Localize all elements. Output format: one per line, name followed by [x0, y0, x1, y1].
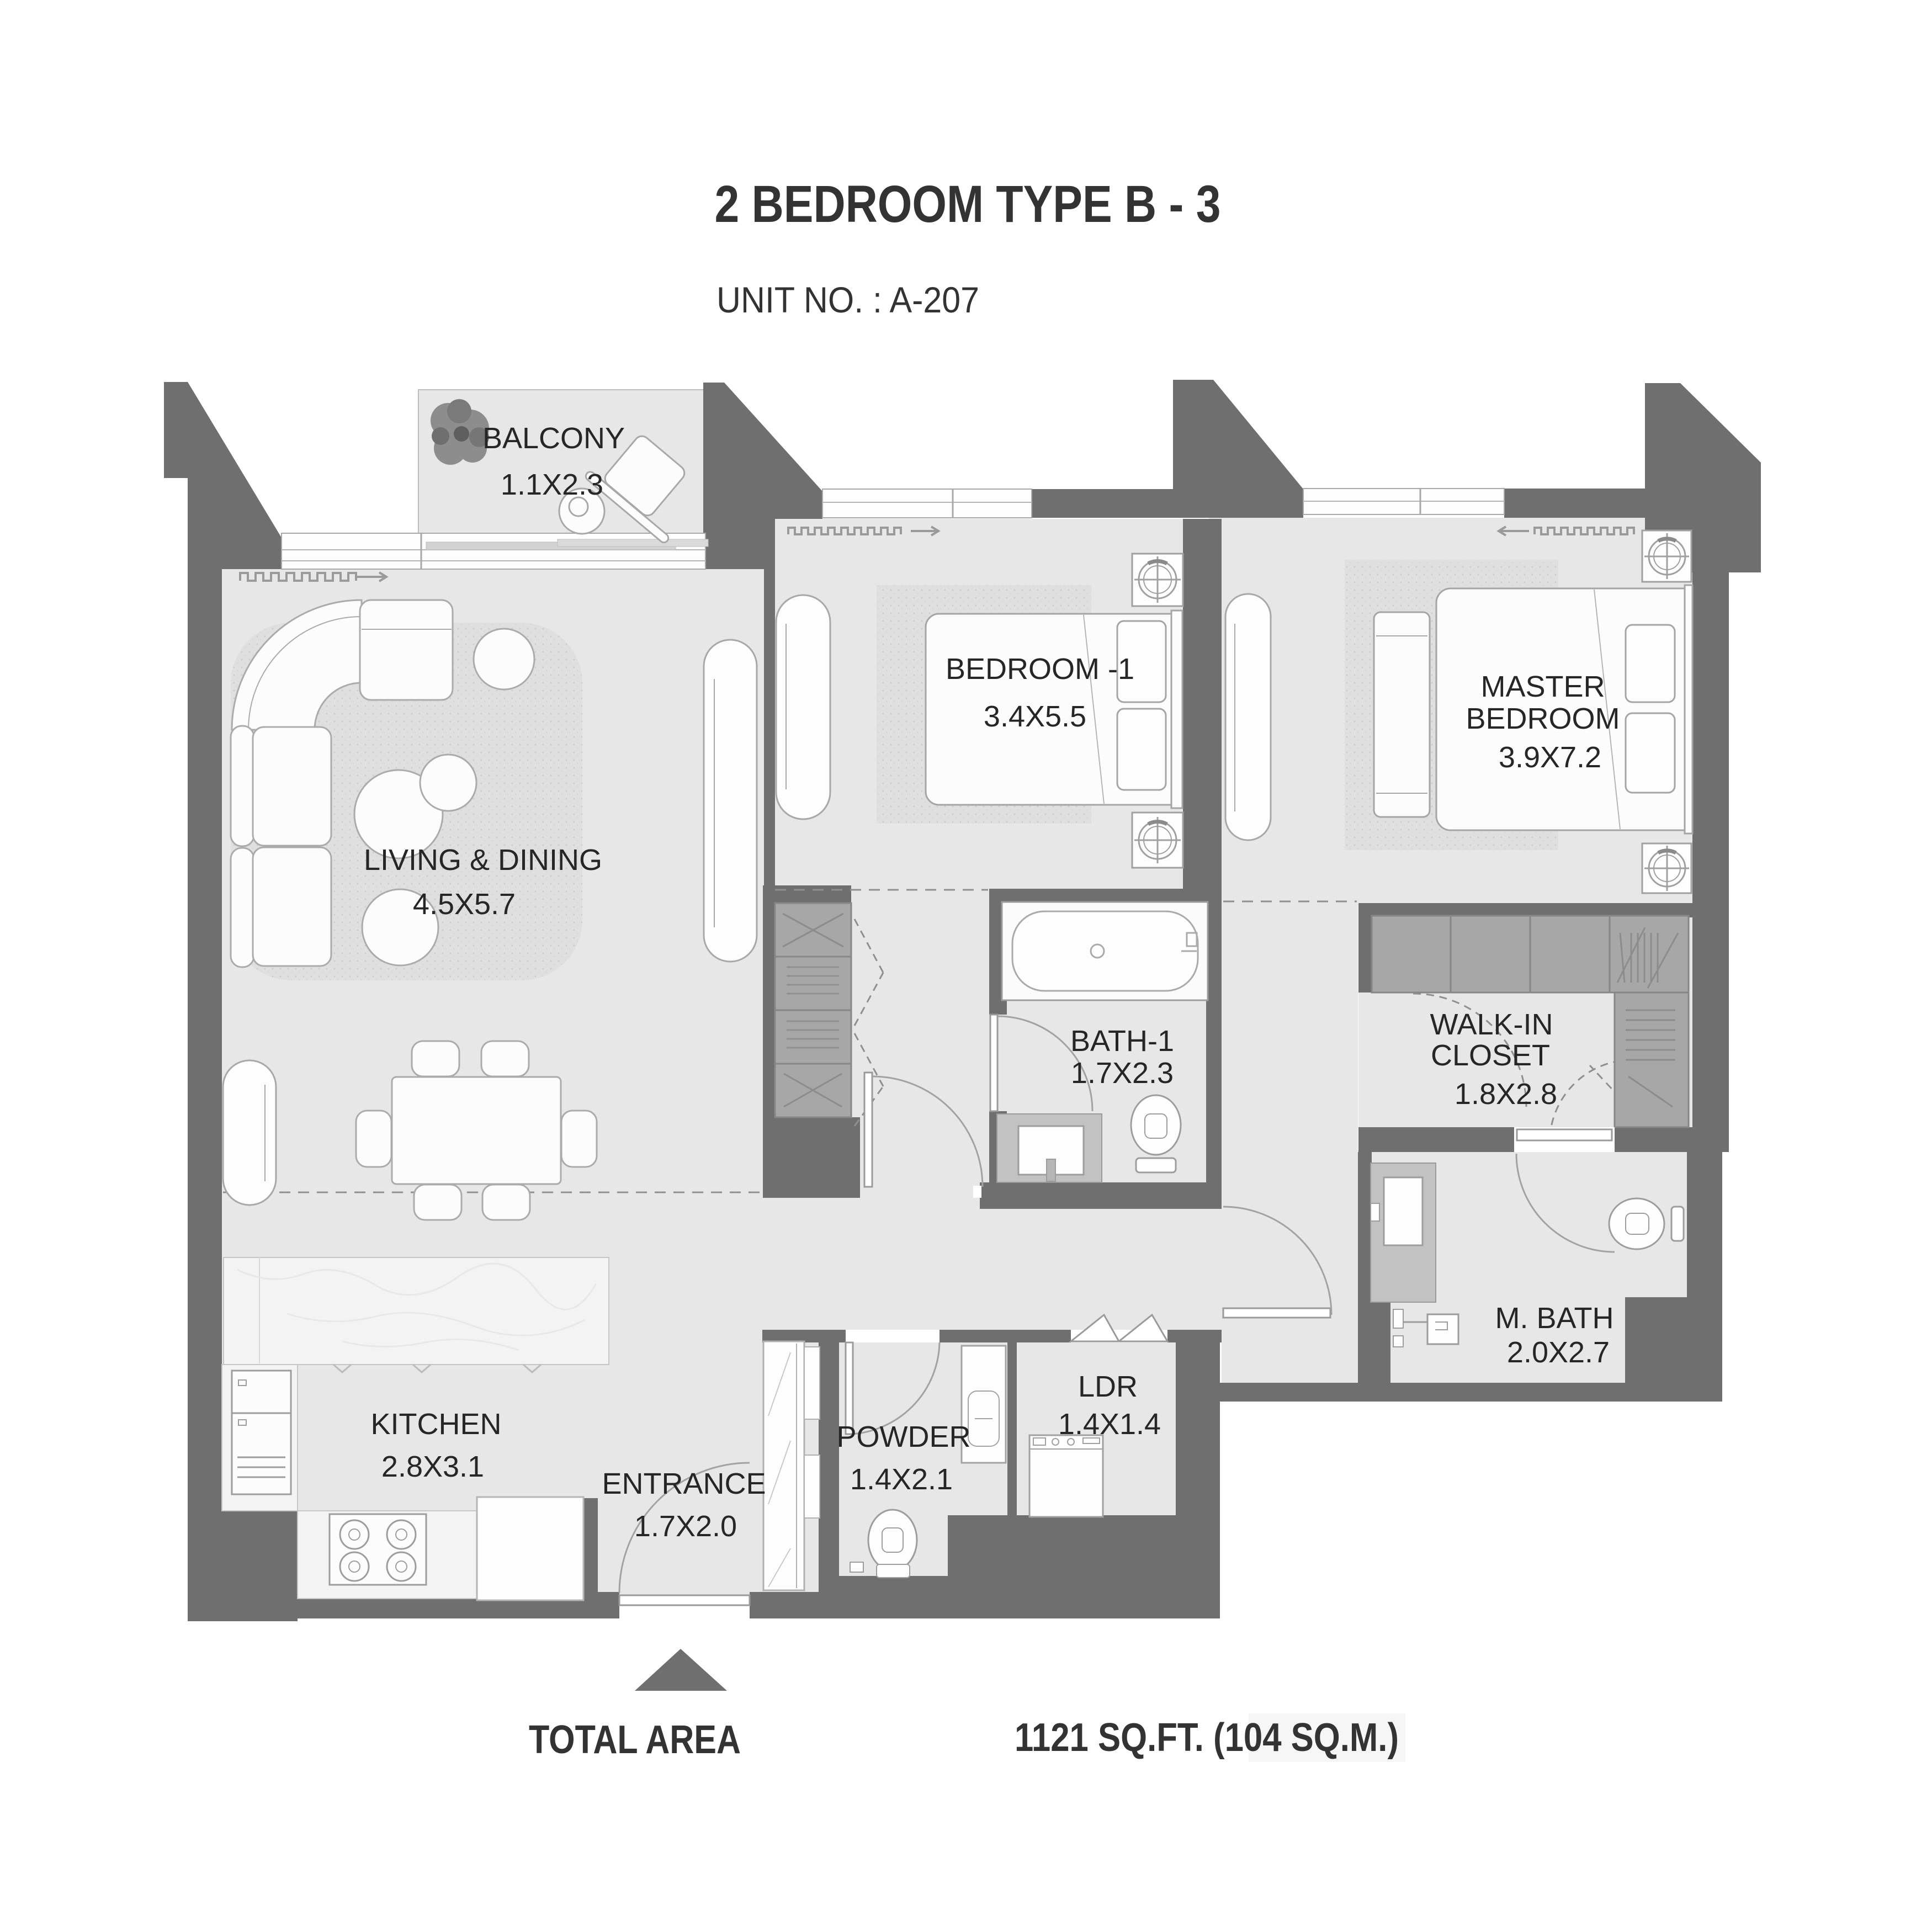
svg-text:MASTER: MASTER: [1480, 670, 1605, 703]
svg-text:POWDER: POWDER: [837, 1420, 971, 1453]
svg-text:1.4X1.4: 1.4X1.4: [1058, 1408, 1161, 1441]
svg-text:BEDROOM: BEDROOM: [1466, 702, 1620, 735]
svg-text:LIVING & DINING: LIVING & DINING: [364, 843, 602, 877]
svg-text:ENTRANCE: ENTRANCE: [602, 1467, 766, 1500]
svg-text:BEDROOM -1: BEDROOM -1: [946, 652, 1134, 686]
svg-text:1121 SQ.FT. (104 SQ.M.): 1121 SQ.FT. (104 SQ.M.): [1015, 1716, 1399, 1760]
svg-text:1.7X2.3: 1.7X2.3: [1071, 1057, 1174, 1090]
svg-text:1.8X2.8: 1.8X2.8: [1455, 1078, 1557, 1111]
svg-text:BATH-1: BATH-1: [1070, 1025, 1174, 1058]
svg-text:M. BATH: M. BATH: [1495, 1302, 1614, 1335]
svg-text:TOTAL AREA: TOTAL AREA: [529, 1718, 741, 1762]
svg-text:1.7X2.0: 1.7X2.0: [634, 1510, 737, 1543]
svg-text:CLOSET: CLOSET: [1431, 1039, 1550, 1072]
svg-text:KITCHEN: KITCHEN: [370, 1408, 501, 1441]
svg-text:3.9X7.2: 3.9X7.2: [1499, 741, 1601, 774]
svg-text:2.8X3.1: 2.8X3.1: [381, 1450, 484, 1483]
svg-text:3.4X5.5: 3.4X5.5: [984, 700, 1086, 733]
svg-text:2.0X2.7: 2.0X2.7: [1507, 1336, 1610, 1369]
svg-text:1.1X2.3: 1.1X2.3: [501, 468, 603, 501]
svg-text:4.5X5.7: 4.5X5.7: [413, 888, 516, 921]
svg-text:1.4X2.1: 1.4X2.1: [850, 1463, 953, 1496]
svg-text:LDR: LDR: [1078, 1370, 1138, 1403]
svg-text:UNIT NO. : A-207: UNIT NO. : A-207: [716, 279, 979, 320]
svg-text:WALK-IN: WALK-IN: [1430, 1008, 1553, 1041]
svg-text:2 BEDROOM TYPE B - 3: 2 BEDROOM TYPE B - 3: [715, 175, 1221, 233]
svg-text:BALCONY: BALCONY: [482, 422, 625, 455]
